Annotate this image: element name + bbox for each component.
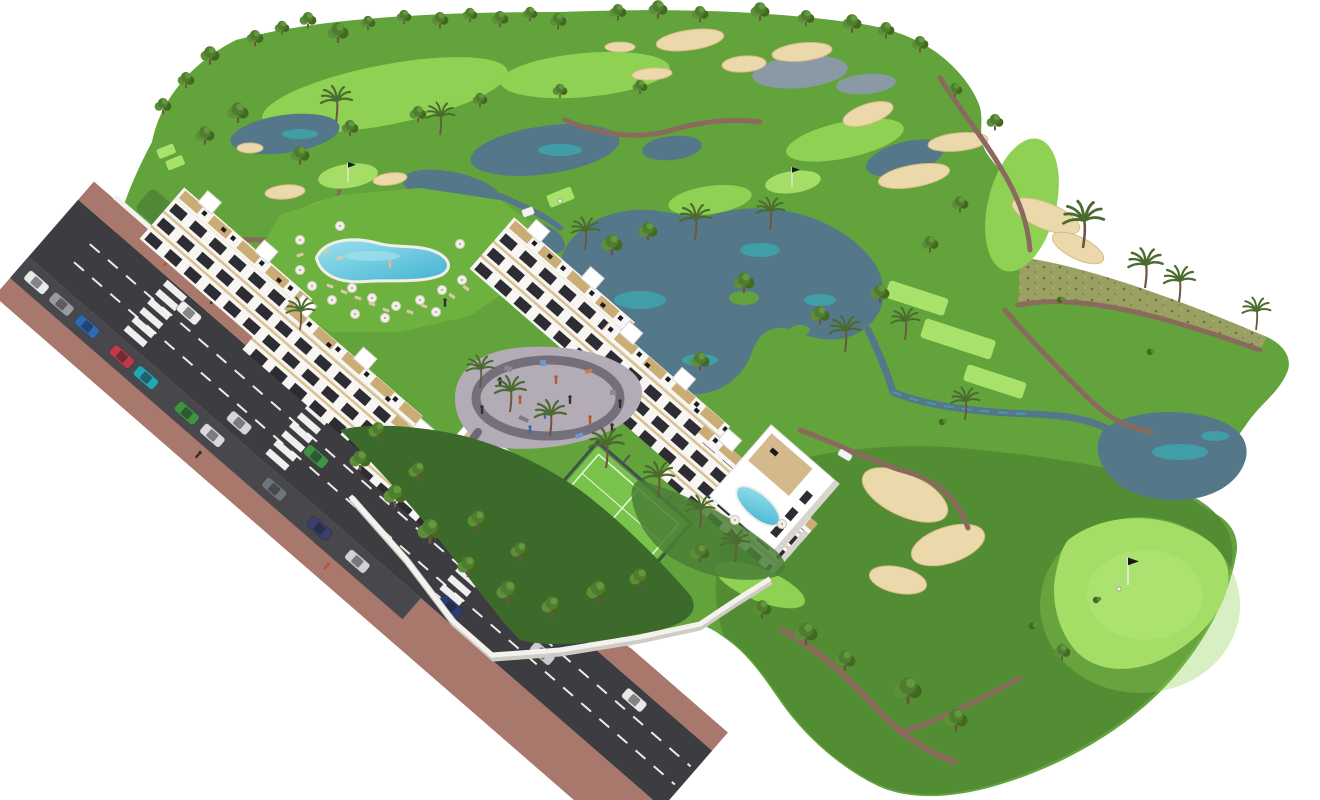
pedestrian bbox=[443, 298, 446, 307]
golfer bbox=[558, 199, 562, 203]
sun-parasol bbox=[380, 313, 389, 322]
sun-parasol bbox=[295, 235, 304, 244]
sun-parasol bbox=[777, 519, 786, 528]
aerial-render bbox=[0, 0, 1320, 800]
pool-highlight bbox=[344, 251, 400, 261]
pedestrian bbox=[480, 405, 483, 414]
sun-parasol bbox=[391, 301, 400, 310]
golfer bbox=[1117, 587, 1121, 591]
sun-parasol bbox=[307, 281, 316, 290]
palm-tree bbox=[1164, 266, 1195, 302]
sun-parasol bbox=[350, 309, 359, 318]
sun-parasol bbox=[431, 307, 440, 316]
pedestrian bbox=[568, 395, 571, 404]
pedestrian bbox=[528, 425, 531, 434]
sun-parasol bbox=[347, 283, 356, 292]
green-mow-stripe bbox=[1087, 550, 1203, 640]
palm-tree bbox=[1129, 248, 1163, 288]
tree bbox=[987, 114, 1004, 130]
sun-parasol bbox=[335, 221, 344, 230]
sun-parasol bbox=[415, 295, 424, 304]
pedestrian bbox=[518, 395, 521, 404]
sun-parasol bbox=[437, 285, 446, 294]
sun-parasol bbox=[295, 265, 304, 274]
pedestrian bbox=[618, 399, 621, 408]
sun-parasol bbox=[457, 275, 466, 284]
pedestrian bbox=[588, 415, 591, 424]
sun-parasol bbox=[455, 239, 464, 248]
sun-parasol bbox=[367, 293, 376, 302]
sun-parasol bbox=[327, 295, 336, 304]
pedestrian bbox=[554, 375, 557, 384]
golf-resort-render bbox=[0, 0, 1320, 800]
sun-parasol bbox=[730, 515, 739, 524]
palm-tree bbox=[1243, 298, 1271, 330]
swimmer bbox=[388, 259, 391, 268]
